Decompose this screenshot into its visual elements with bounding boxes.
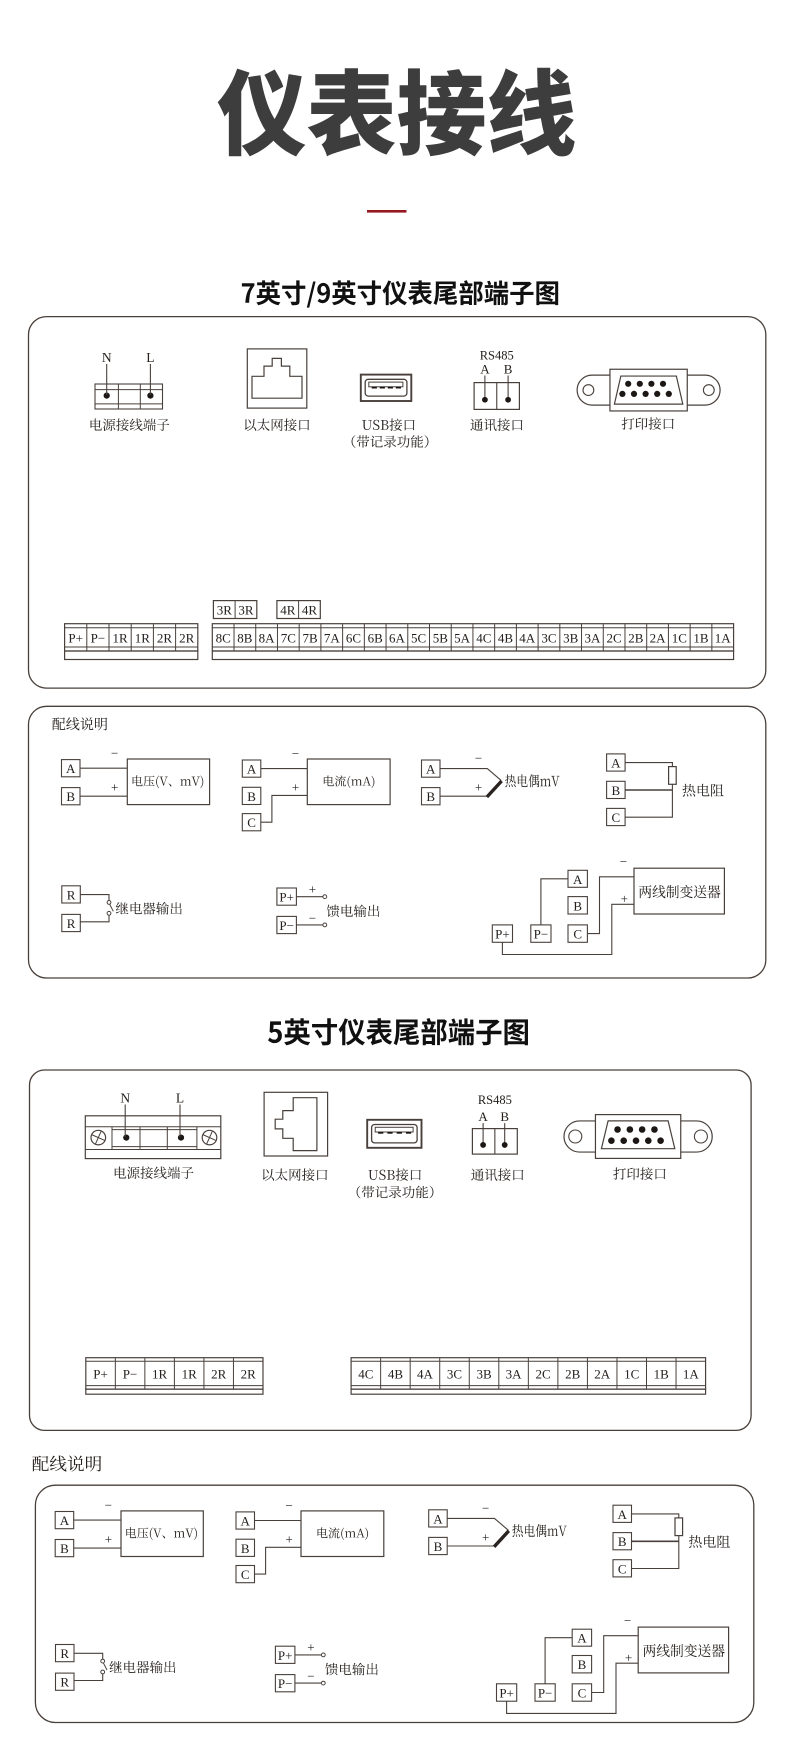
- svg-text:A: A: [66, 761, 76, 776]
- svg-text:2A: 2A: [650, 630, 667, 645]
- svg-text:R: R: [60, 1646, 69, 1661]
- svg-text:R: R: [60, 1675, 69, 1690]
- svg-text:+: +: [625, 1650, 632, 1665]
- svg-text:7C: 7C: [281, 630, 296, 645]
- svg-text:6B: 6B: [368, 630, 384, 645]
- svg-text:A: A: [60, 1513, 70, 1528]
- svg-text:1C: 1C: [624, 1366, 639, 1381]
- svg-text:C: C: [573, 927, 582, 942]
- svg-text:A: A: [241, 1514, 251, 1529]
- svg-text:1R: 1R: [135, 630, 151, 645]
- svg-text:+: +: [475, 780, 482, 795]
- svg-text:A: A: [577, 1631, 587, 1646]
- svg-text:P+: P+: [499, 1686, 514, 1701]
- svg-text:1C: 1C: [672, 630, 687, 645]
- svg-text:−: −: [482, 1500, 489, 1515]
- svg-text:C: C: [241, 1567, 250, 1582]
- svg-text:R: R: [67, 916, 76, 931]
- svg-text:4R: 4R: [280, 603, 296, 618]
- svg-text:3R: 3R: [238, 603, 254, 618]
- svg-text:−: −: [111, 746, 118, 761]
- svg-text:−: −: [475, 751, 482, 766]
- svg-text:B: B: [247, 789, 256, 804]
- svg-text:−: −: [286, 1498, 293, 1513]
- svg-text:8A: 8A: [259, 630, 276, 645]
- svg-text:1B: 1B: [654, 1366, 670, 1381]
- svg-text:3C: 3C: [447, 1366, 462, 1381]
- svg-text:A: A: [433, 1511, 443, 1526]
- svg-text:+: +: [621, 891, 628, 906]
- svg-text:B: B: [434, 1539, 443, 1554]
- svg-text:L: L: [176, 1091, 184, 1106]
- svg-text:B: B: [612, 783, 621, 798]
- svg-text:8B: 8B: [237, 630, 253, 645]
- svg-text:2R: 2R: [157, 630, 173, 645]
- svg-text:4A: 4A: [417, 1366, 434, 1381]
- svg-text:A: A: [247, 762, 257, 777]
- svg-text:B: B: [573, 898, 582, 913]
- svg-text:2R: 2R: [211, 1366, 227, 1381]
- svg-text:RS485: RS485: [478, 1093, 512, 1107]
- svg-text:+: +: [309, 881, 316, 896]
- svg-text:+: +: [286, 1532, 293, 1547]
- svg-text:2R: 2R: [179, 630, 195, 645]
- svg-text:P−: P−: [279, 918, 294, 933]
- svg-text:−: −: [620, 854, 627, 869]
- svg-text:−: −: [307, 1669, 314, 1684]
- svg-text:6C: 6C: [346, 630, 361, 645]
- svg-text:L: L: [146, 350, 154, 365]
- svg-text:−: −: [624, 1613, 631, 1628]
- svg-text:B: B: [618, 1534, 627, 1549]
- svg-text:P+: P+: [68, 630, 83, 645]
- svg-text:P−: P−: [91, 630, 106, 645]
- svg-text:B: B: [578, 1657, 587, 1672]
- svg-text:A: A: [618, 1507, 628, 1522]
- svg-text:−: −: [292, 746, 299, 761]
- svg-text:P−: P−: [538, 1686, 553, 1701]
- svg-text:2C: 2C: [536, 1366, 551, 1381]
- svg-text:5C: 5C: [411, 630, 426, 645]
- svg-text:8C: 8C: [216, 630, 231, 645]
- svg-text:7A: 7A: [324, 630, 341, 645]
- svg-text:1R: 1R: [113, 630, 129, 645]
- svg-text:1R: 1R: [152, 1366, 168, 1381]
- svg-text:5A: 5A: [454, 630, 471, 645]
- svg-text:1B: 1B: [693, 630, 709, 645]
- svg-text:B: B: [500, 1109, 509, 1124]
- svg-text:A: A: [611, 756, 621, 771]
- svg-text:2C: 2C: [607, 630, 622, 645]
- svg-text:7B: 7B: [302, 630, 318, 645]
- svg-text:A: A: [426, 762, 436, 777]
- svg-text:+: +: [111, 779, 118, 794]
- svg-text:C: C: [578, 1686, 587, 1701]
- svg-text:2A: 2A: [594, 1366, 611, 1381]
- svg-text:B: B: [504, 362, 513, 377]
- svg-text:A: A: [478, 1109, 488, 1124]
- svg-text:4R: 4R: [302, 603, 318, 618]
- svg-text:P−: P−: [278, 1676, 293, 1691]
- svg-text:3B: 3B: [563, 630, 579, 645]
- svg-text:3A: 3A: [584, 630, 601, 645]
- svg-text:C: C: [247, 815, 256, 830]
- svg-text:B: B: [426, 789, 435, 804]
- svg-text:−: −: [105, 1498, 112, 1513]
- svg-text:3B: 3B: [476, 1366, 492, 1381]
- svg-text:3C: 3C: [541, 630, 556, 645]
- svg-text:P+: P+: [93, 1366, 108, 1381]
- svg-text:P−: P−: [534, 927, 549, 942]
- svg-text:3A: 3A: [506, 1366, 523, 1381]
- svg-text:6A: 6A: [389, 630, 406, 645]
- svg-text:−: −: [309, 910, 316, 925]
- svg-text:C: C: [612, 810, 621, 825]
- svg-text:P+: P+: [279, 890, 294, 905]
- svg-text:A: A: [480, 362, 490, 377]
- svg-text:N: N: [102, 350, 112, 365]
- svg-text:N: N: [120, 1091, 130, 1106]
- svg-text:1A: 1A: [715, 630, 732, 645]
- svg-text:C: C: [618, 1561, 627, 1576]
- svg-text:A: A: [573, 872, 583, 887]
- svg-text:+: +: [105, 1531, 112, 1546]
- svg-text:+: +: [482, 1529, 489, 1544]
- svg-text:4C: 4C: [358, 1366, 373, 1381]
- svg-text:B: B: [60, 1541, 69, 1556]
- svg-text:1A: 1A: [683, 1366, 700, 1381]
- svg-text:3R: 3R: [217, 603, 233, 618]
- svg-text:P+: P+: [495, 927, 510, 942]
- svg-text:2R: 2R: [241, 1366, 257, 1381]
- svg-text:B: B: [66, 789, 75, 804]
- svg-text:+: +: [292, 780, 299, 795]
- svg-text:4A: 4A: [519, 630, 536, 645]
- svg-text:4C: 4C: [476, 630, 491, 645]
- svg-text:P−: P−: [123, 1366, 138, 1381]
- svg-text:5B: 5B: [433, 630, 449, 645]
- svg-text:+: +: [307, 1640, 314, 1655]
- svg-text:4B: 4B: [388, 1366, 404, 1381]
- svg-text:2B: 2B: [565, 1366, 581, 1381]
- svg-text:B: B: [241, 1541, 250, 1556]
- svg-text:P+: P+: [278, 1648, 293, 1663]
- svg-text:R: R: [67, 887, 76, 902]
- svg-text:2B: 2B: [628, 630, 644, 645]
- svg-text:4B: 4B: [498, 630, 514, 645]
- svg-text:1R: 1R: [182, 1366, 198, 1381]
